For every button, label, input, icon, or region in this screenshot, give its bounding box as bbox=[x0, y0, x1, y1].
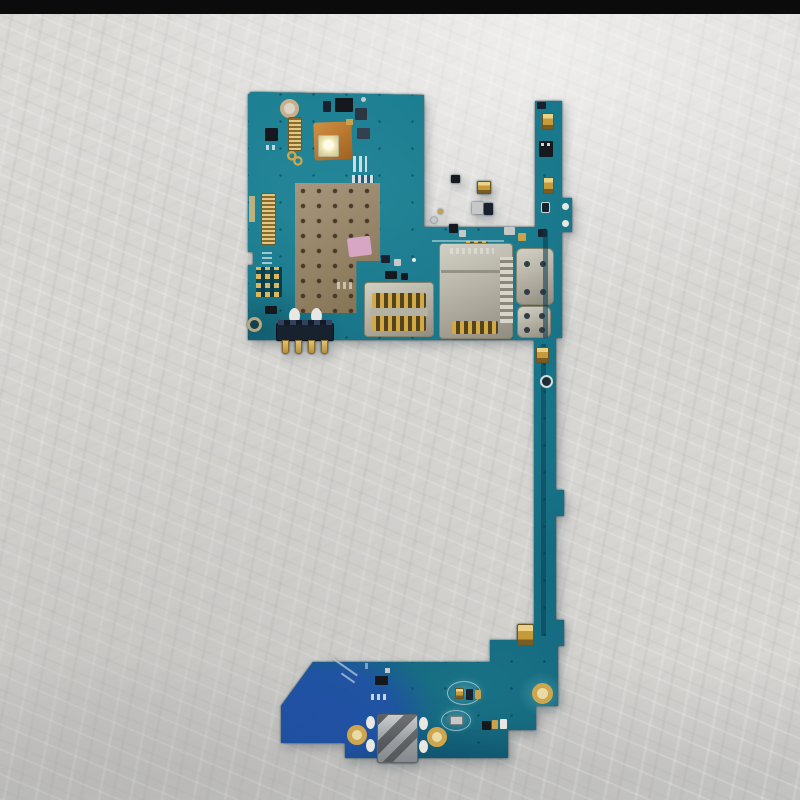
battery-pin-1 bbox=[282, 340, 289, 354]
sim-bridge bbox=[370, 308, 428, 316]
usb-solder-oval-a bbox=[366, 716, 375, 729]
battery-pin-3 bbox=[308, 340, 315, 354]
usb-solder-oval-d bbox=[419, 740, 428, 753]
sticker-pink bbox=[347, 236, 372, 258]
chip-navy-a bbox=[484, 203, 493, 215]
tab-hole-b bbox=[562, 220, 569, 227]
sim-contacts-top bbox=[372, 293, 426, 308]
chip-gold-b bbox=[518, 233, 526, 241]
can-a-dot-1 bbox=[524, 261, 530, 267]
bb-chip-tiny bbox=[385, 668, 390, 673]
pad-row-a bbox=[353, 156, 367, 172]
sd-teeth bbox=[500, 257, 513, 323]
motherboard-assembly bbox=[0, 0, 800, 800]
battery-connector bbox=[276, 323, 334, 341]
ic-chip-c bbox=[355, 108, 367, 120]
strip-tip-chip bbox=[537, 102, 546, 109]
bb-gold-chip-b bbox=[475, 690, 481, 699]
chip-silver-e bbox=[394, 259, 401, 266]
screw-hole-top-left bbox=[280, 99, 299, 118]
can-b-dot-1 bbox=[524, 313, 530, 319]
fpc-connector-top-left bbox=[288, 117, 302, 151]
chip-silver-d bbox=[504, 227, 515, 235]
usb-connector bbox=[377, 714, 418, 763]
screw-hole-bottom-left bbox=[247, 317, 262, 332]
strip-ic-dots bbox=[541, 143, 550, 146]
battery-pin-2 bbox=[295, 340, 302, 354]
ic-chip-g bbox=[451, 175, 460, 183]
chip-gold-tiny-a bbox=[346, 119, 353, 125]
sim-contacts-bottom bbox=[372, 316, 426, 331]
can-b-dot-3 bbox=[524, 327, 530, 333]
fpc-connector-left bbox=[261, 193, 276, 245]
dot-silver-b bbox=[431, 217, 437, 223]
led-flash bbox=[318, 135, 339, 157]
sd-contact-pads bbox=[452, 321, 498, 334]
bb-ic-a bbox=[375, 676, 388, 685]
chip-gold-a bbox=[477, 181, 491, 194]
usb-gold-ring-left bbox=[347, 725, 367, 745]
ic-chip-a bbox=[265, 128, 278, 141]
bb-silver-comp bbox=[450, 716, 463, 725]
bb-dark-square bbox=[482, 721, 491, 730]
bb-silk-tick bbox=[365, 663, 368, 669]
bb-silk-diag-a bbox=[332, 658, 358, 677]
silk-dashes-b bbox=[337, 282, 353, 289]
bb-pad-row bbox=[371, 694, 388, 700]
strip-ring-component bbox=[540, 375, 553, 388]
battery-pin-4 bbox=[321, 340, 328, 354]
pad-row-b bbox=[352, 175, 374, 183]
pad-dots-a bbox=[266, 145, 278, 150]
photo-of-phone-motherboard bbox=[0, 0, 800, 800]
tab-hole-a bbox=[562, 203, 569, 210]
chip-navy-c bbox=[381, 255, 390, 263]
bb-gold-pair-a bbox=[492, 720, 498, 729]
bb-navy-chip bbox=[466, 689, 473, 700]
dot-white-a bbox=[412, 258, 416, 262]
dot-gold-a bbox=[438, 209, 443, 214]
antenna-squiggle bbox=[286, 150, 304, 166]
usb-solder-oval-b bbox=[366, 739, 375, 752]
strip-gold-a bbox=[542, 113, 554, 130]
sd-engraving bbox=[450, 248, 494, 254]
chip-silver-b bbox=[472, 202, 483, 214]
strip-chip-dark bbox=[541, 202, 550, 213]
usb-solder-oval-c bbox=[419, 717, 428, 730]
bb-gold-pad bbox=[517, 624, 534, 646]
ic-chip-d bbox=[357, 128, 370, 139]
silk-line-a bbox=[432, 240, 504, 242]
strip-gold-c bbox=[536, 347, 549, 363]
chip-silver-c bbox=[459, 230, 466, 237]
bb-gold-ring bbox=[532, 683, 553, 704]
strip-gold-b bbox=[543, 177, 554, 194]
shield-can-a bbox=[516, 248, 554, 305]
battery-connector-teeth bbox=[278, 320, 332, 325]
bb-gold-chip-a bbox=[455, 688, 464, 699]
bb-pale-pair-b bbox=[500, 719, 507, 729]
ic-chip-i bbox=[385, 271, 397, 279]
strip-trace-upper bbox=[543, 230, 548, 338]
ic-chip-b2 bbox=[323, 101, 331, 112]
edge-pad-gold bbox=[249, 196, 255, 222]
usb-gold-ring-right bbox=[427, 727, 447, 747]
dot-silver-a bbox=[361, 97, 366, 102]
ic-chip-f bbox=[265, 306, 277, 314]
ic-chip-j bbox=[401, 273, 408, 280]
board-parts bbox=[0, 0, 800, 800]
can-a-dot-3 bbox=[524, 289, 530, 295]
ic-chip-h bbox=[449, 224, 458, 233]
ic-chip-b bbox=[335, 98, 353, 112]
test-pad-grid bbox=[256, 267, 282, 297]
